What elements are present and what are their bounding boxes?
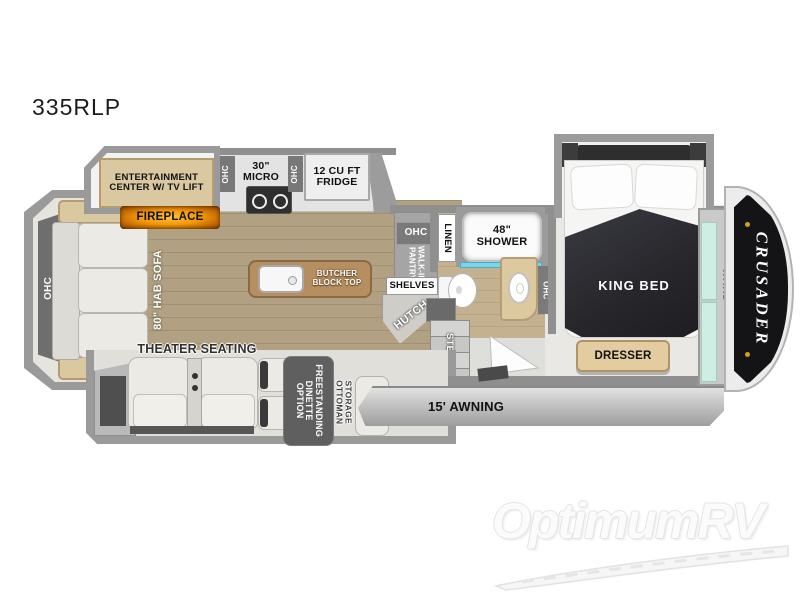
kitchen-ohc-right: OHC	[288, 156, 303, 192]
wardrobe-mirror	[701, 222, 717, 300]
cupholder-icon	[192, 373, 198, 379]
sink-drain	[288, 276, 297, 285]
chair-back	[260, 399, 268, 427]
stove-icon	[246, 186, 292, 214]
awning-label: 15' AWNING	[428, 400, 504, 414]
cap-light-icon	[745, 352, 750, 357]
recliner-seat	[201, 394, 255, 428]
ottoman-label: STORAGE OTTOMAN	[334, 380, 352, 424]
burner-icon	[273, 194, 288, 209]
recliner-console	[187, 358, 202, 430]
entertainment-center: ENTERTAINMENT CENTER W/ TV LIFT	[99, 158, 214, 208]
awning: 15' AWNING	[358, 386, 724, 426]
entertainment-label: ENTERTAINMENT CENTER W/ TV LIFT	[102, 173, 212, 194]
kitchen-ohc-left: OHC	[218, 156, 235, 192]
theater-recliner	[196, 357, 258, 429]
sofa-label: 80" HAB SOFA	[153, 250, 165, 330]
shower: 48" SHOWER	[462, 212, 542, 262]
chair-back	[260, 361, 268, 389]
dresser: DRESSER	[576, 340, 670, 372]
bath-bedroom-wall	[548, 208, 556, 334]
toilet-flush	[456, 286, 462, 294]
watermark: OptimumRV	[492, 492, 792, 592]
microwave-label: 30" MICRO	[240, 161, 282, 184]
sofa-label-box: 80" HAB SOFA	[146, 232, 172, 348]
island-label-box: BUTCHER BLOCK TOP	[304, 262, 370, 296]
wardrobe-mirror	[701, 302, 717, 382]
sink-drain	[516, 283, 524, 294]
floorplan-canvas: 335RLP OHC 80" HAB SOFA OHC 30" MICRO OH…	[0, 0, 800, 600]
floorplan-model-title: 335RLP	[32, 94, 121, 121]
wall-ohc-label: OHC	[405, 228, 428, 239]
island-sink-icon	[258, 265, 304, 293]
sofa-back	[52, 222, 80, 360]
cap-light-icon	[745, 222, 750, 227]
fireplace: FIREPLACE	[120, 206, 220, 229]
shower-label: 48" SHOWER	[471, 225, 533, 249]
linen-label: LINEN	[442, 223, 452, 253]
bath-wall-left	[430, 210, 438, 272]
shelves: SHELVES	[386, 277, 438, 296]
sink-icon	[508, 272, 530, 304]
kitchen-ohc-left-label: OHC	[222, 165, 231, 183]
pillow	[570, 163, 634, 210]
dresser-label: DRESSER	[595, 350, 652, 362]
burner-icon	[252, 194, 267, 209]
island-label: BUTCHER BLOCK TOP	[307, 270, 367, 287]
microwave: 30" MICRO	[236, 156, 286, 188]
king-bed-label: KING BED	[598, 279, 670, 293]
fireplace-label: FIREPLACE	[137, 211, 204, 223]
corner-tv-icon	[100, 376, 126, 426]
shelves-label: SHELVES	[389, 281, 434, 291]
sofa-cushion	[78, 268, 148, 313]
recliner-seat	[133, 394, 187, 428]
watermark-road-icon	[492, 540, 792, 592]
pillow	[634, 163, 698, 210]
dinette-option-table: FREESTANDING DINETTE OPTION	[283, 356, 334, 446]
fridge: 12 CU FT FRIDGE	[304, 153, 370, 201]
dinette-option-label: FREESTANDING DINETTE OPTION	[294, 365, 323, 438]
kitchen-ohc-right-label: OHC	[291, 165, 300, 183]
linen-cabinet: LINEN	[438, 214, 456, 262]
cupholder-icon	[192, 385, 198, 391]
bed-comforter: KING BED	[565, 209, 703, 337]
theater-label: THEATER SEATING	[134, 343, 260, 357]
ottoman-label-box: STORAGE OTTOMAN	[330, 372, 356, 432]
fridge-label: 12 CU FT FRIDGE	[308, 166, 366, 189]
king-bed: KING BED	[564, 160, 704, 338]
brand-label: CRUSADER	[751, 232, 771, 347]
step-landing	[426, 298, 456, 322]
theater-recliner	[128, 357, 190, 429]
recliner-mat	[130, 426, 254, 434]
sofa-cushion	[78, 223, 148, 268]
